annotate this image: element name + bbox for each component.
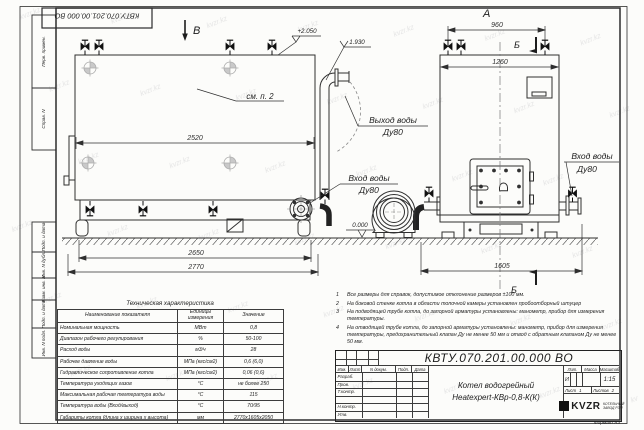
- lit-label: Лит.: [564, 366, 582, 373]
- col-podp: Подп.: [396, 366, 412, 373]
- param-name: Гидравлическое сопротивление котла: [58, 367, 178, 378]
- sheet-count-row: Лист 1 Листов 2: [564, 387, 619, 394]
- table-row: Гидравлическое сопротивление котла МПа (…: [58, 367, 284, 378]
- param-unit: МПа (кгс/см2): [178, 367, 224, 378]
- inlet-right-label-line2: Ду80: [576, 164, 597, 174]
- section-b-top-label: Б: [514, 40, 520, 50]
- corner-stamp-text: КВТУ.070.201.00.000 ВО: [54, 12, 139, 21]
- table-row: Расход воды м3/ч 28: [58, 345, 284, 356]
- dim-total-length: 2770: [187, 264, 204, 271]
- view-b-label: В: [193, 25, 200, 37]
- elevation-roof: +2.050: [297, 28, 317, 35]
- change-rows: [336, 351, 378, 366]
- param-value: 115: [224, 390, 284, 401]
- view-a-label: А: [482, 8, 490, 20]
- col-list: Лист: [349, 366, 362, 373]
- param-value: 2770х1605х2050: [224, 412, 284, 423]
- kvzr-logo-text: KVZR: [571, 401, 600, 412]
- table-row: Номинальная мощность МВт 0,8: [58, 323, 284, 334]
- table-row: Рабочее давление воды МПа (кгс/см2) 0,6 …: [58, 356, 284, 367]
- margin-label: Справ. N: [41, 109, 46, 129]
- drawing-sheet: kvzr.kz kvzr.kz: [0, 0, 644, 430]
- tech-table-title: Техническая характеристика: [57, 300, 283, 307]
- ground-line: [62, 238, 598, 245]
- elevation-ground: 0.000: [352, 222, 368, 229]
- param-value: 0,8: [224, 323, 284, 334]
- sheets-value: 2: [612, 388, 614, 393]
- outlet-label-line2: Ду80: [382, 127, 403, 137]
- param-name: Температура воды (Вход/выход): [58, 401, 178, 412]
- note-number: 3: [336, 309, 347, 323]
- outlet-label-line1: Выход воды: [369, 115, 418, 125]
- product-name: Котел водогрейный Heatexpert-КВр-0,8-К(К…: [428, 366, 564, 418]
- product-name-line1: Котел водогрейный: [458, 380, 534, 392]
- param-unit: °С: [178, 401, 224, 412]
- note-text: На боковой стенке котла в области топочн…: [347, 301, 618, 308]
- table-row: Температура воды (Вход/выход) °С 70/95: [58, 401, 284, 412]
- param-unit: %: [178, 334, 224, 345]
- dim-front-top: 960: [491, 22, 503, 29]
- signature-header: Изм. Лист N докум. Подп. Дата: [336, 366, 428, 373]
- margin-label: Подп. и дата: [41, 299, 46, 328]
- margin-label: Инв. N подл.: [41, 330, 46, 357]
- param-unit: м3/ч: [178, 345, 224, 356]
- sheet-value: 1: [579, 388, 581, 393]
- note-text: Все размеры для справок, допустимое откл…: [347, 292, 618, 299]
- header-value: Значение: [224, 310, 284, 323]
- notes-list: 1 Все размеры для справок, допустимое от…: [336, 292, 618, 348]
- margin-label: Перв. примен.: [41, 36, 46, 67]
- note-number: 4: [336, 325, 347, 346]
- massa-label: Масса: [582, 366, 600, 373]
- col-ndoc: N докум.: [362, 366, 396, 373]
- header-units: Единицы измерения: [178, 310, 224, 323]
- table-row: Температура уходящих газов °С не более 2…: [58, 378, 284, 389]
- param-name: Температура уходящих газов: [58, 378, 178, 389]
- param-value: 28: [224, 345, 284, 356]
- note-text: На отводящей трубе котла, до запорной ар…: [347, 325, 618, 346]
- param-unit: МВт: [178, 323, 224, 334]
- margin-label: Инв. N дубл.: [41, 252, 46, 279]
- param-value: 0,6 (6,0): [224, 356, 284, 367]
- param-name: Габариты котла (длина х ширина х высота): [58, 412, 178, 423]
- param-unit: мм: [178, 412, 224, 423]
- note-text: На подводящей трубе котла, до запорной а…: [347, 309, 618, 323]
- inlet-left-label-line1: Вход воды: [348, 173, 390, 183]
- row-tkontr: Т.контр.: [336, 388, 355, 396]
- header-param: Наименование показателя: [58, 310, 178, 323]
- inlet-left-label-line2: Ду80: [358, 185, 379, 195]
- param-name: Рабочее давление воды: [58, 356, 178, 367]
- table-header-row: Наименование показателя Единицы измерени…: [58, 310, 284, 323]
- col-data: Дата: [412, 366, 428, 373]
- margin-label: Подп. и дата: [41, 222, 46, 251]
- format-label: Формат А3: [520, 421, 620, 426]
- row-razrab: Разраб.: [336, 373, 353, 381]
- lit-value: И: [564, 373, 570, 387]
- note-item: 3 На подводящей трубе котла, до запорной…: [336, 309, 618, 323]
- lit-mass-scale-header: Лит. Масса Масштаб: [564, 366, 619, 373]
- col-izm: Изм.: [336, 366, 349, 373]
- title-block: КВТУ.070.201.00.000 ВО Изм. Лист N докум…: [335, 350, 622, 422]
- table-row: Диапазон рабочего регулирования % 50-100: [58, 334, 284, 345]
- param-name: Диапазон рабочего регулирования: [58, 334, 178, 345]
- dim-shell-length: 2520: [186, 135, 203, 142]
- row-utv: Утв.: [336, 411, 347, 419]
- param-value: 0,06 (0,6): [224, 367, 284, 378]
- param-name: Максимальная рабочая температура воды: [58, 390, 178, 401]
- param-value: 70/95: [224, 401, 284, 412]
- row-prov: Пров.: [336, 381, 349, 389]
- dim-skid-length: 2650: [187, 250, 204, 257]
- table-row: Габариты котла (длина х ширина х высота)…: [58, 412, 284, 423]
- elevation-pipe: 1.930: [349, 39, 365, 46]
- table-row: Максимальная рабочая температура воды °С…: [58, 390, 284, 401]
- param-unit: °С: [178, 390, 224, 401]
- param-unit: °С: [178, 378, 224, 389]
- param-unit: МПа (кгс/см2): [178, 356, 224, 367]
- note-item: 4 На отводящей трубе котла, до запорной …: [336, 325, 618, 346]
- dim-front-width: 1260: [492, 59, 508, 66]
- company-logo: KVZR КОТЕЛЬНЫЙ ЗАВОД РЭП: [564, 394, 619, 418]
- product-name-line2: Heatexpert-КВр-0,8-К(К): [452, 392, 540, 404]
- note-number: 2: [336, 301, 347, 308]
- param-value: 50-100: [224, 334, 284, 345]
- margin-label: Взам. инв. N: [41, 275, 46, 302]
- document-number: КВТУ.070.201.00.000 ВО: [378, 351, 619, 366]
- param-name: Расход воды: [58, 345, 178, 356]
- note-item: 2 На боковой стенке котла в области топо…: [336, 301, 618, 308]
- signature-rows: Разраб. Пров. Т.контр. Н.контр. Утв.: [336, 373, 428, 418]
- note-item: 1 Все размеры для справок, допустимое от…: [336, 292, 618, 299]
- tech-characteristics: Техническая характеристика Наименование …: [57, 300, 283, 424]
- see-item-label: см. п. 2: [246, 92, 274, 101]
- kvzr-logo-icon: [559, 401, 569, 411]
- param-value: не более 250: [224, 378, 284, 389]
- sheets-label: Листов: [593, 388, 609, 393]
- note-number: 1: [336, 292, 347, 299]
- param-name: Номинальная мощность: [58, 323, 178, 334]
- dim-front-base: 1605: [494, 263, 510, 270]
- inlet-right-label-line1: Вход воды: [571, 151, 613, 161]
- scale-label: Масштаб: [600, 366, 619, 373]
- sheet-label: Лист: [565, 388, 576, 393]
- row-nkontr: Н.контр.: [336, 403, 356, 411]
- scale-value: 1:15: [600, 373, 619, 387]
- lit-mass-scale-values: И 1:15: [564, 373, 619, 387]
- tech-table-grid: Наименование показателя Единицы измерени…: [57, 309, 284, 424]
- logo-subtext-line2: ЗАВОД РЭП: [603, 406, 624, 410]
